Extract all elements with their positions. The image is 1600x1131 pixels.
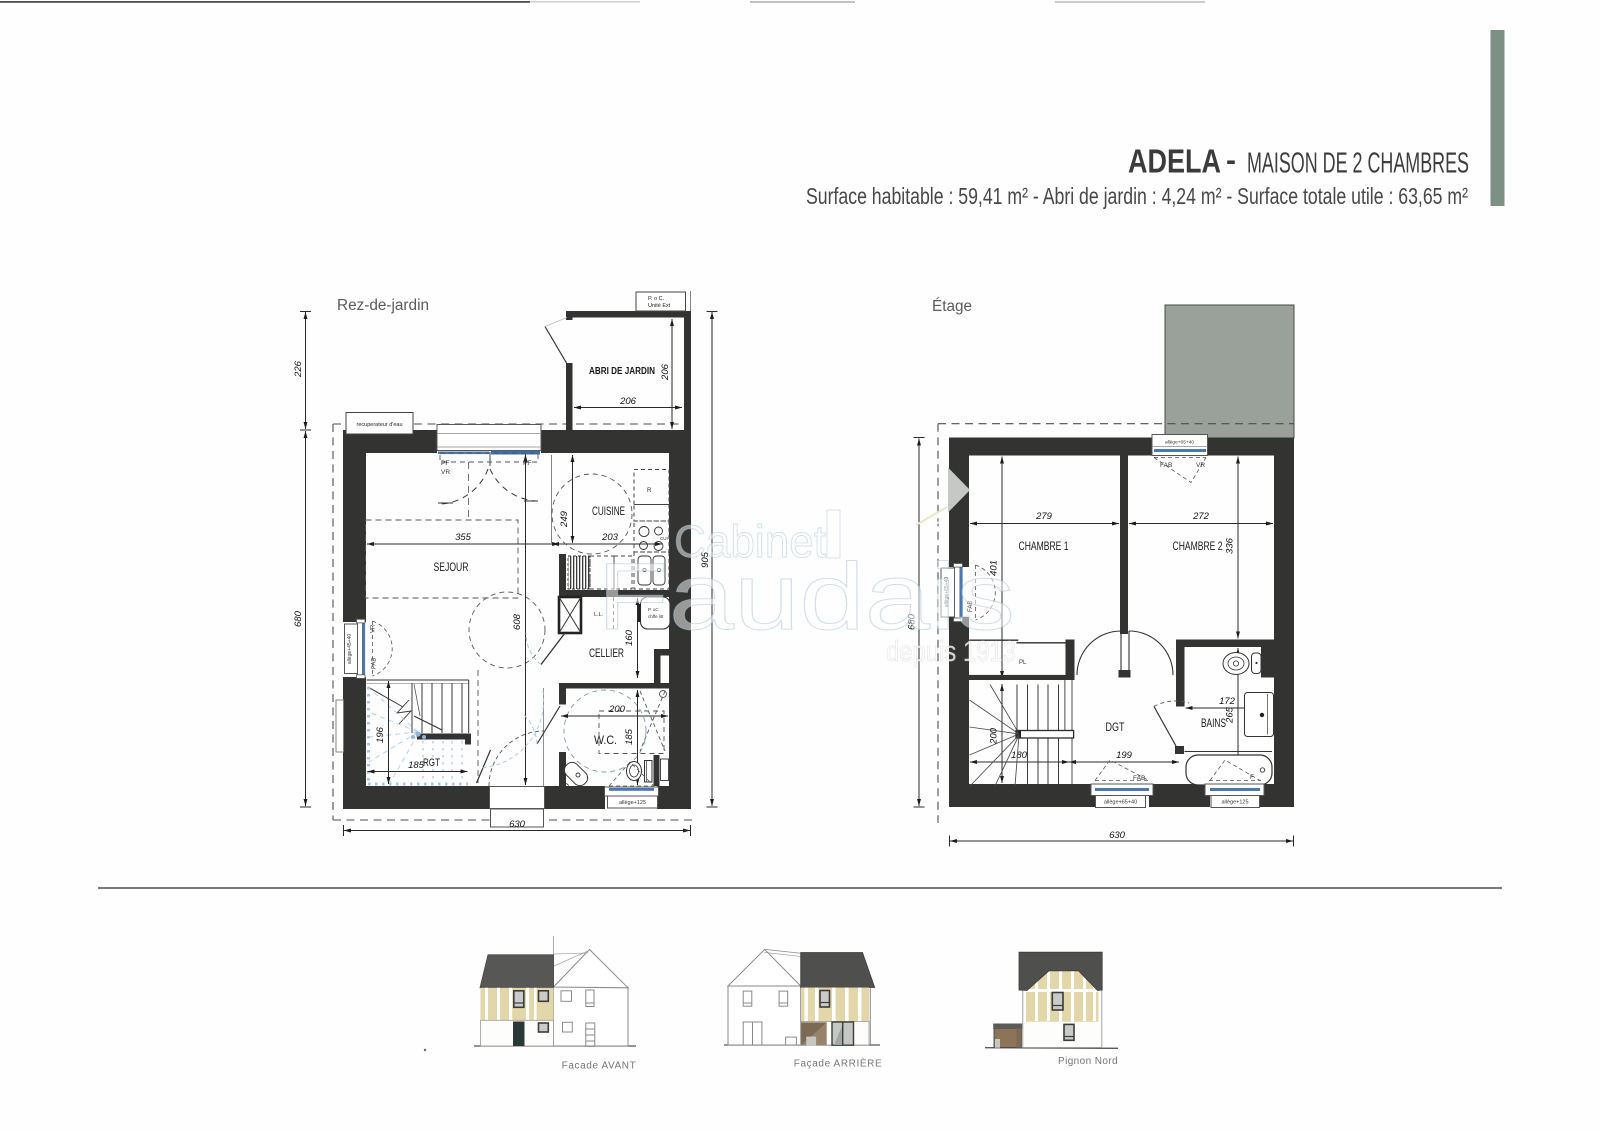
svg-text:CUI: CUI xyxy=(660,536,668,541)
svg-text:FAB: FAB xyxy=(1133,775,1145,782)
svg-text:Unité Ext: Unité Ext xyxy=(648,303,671,309)
svg-text:Rez-de-jardin: Rez-de-jardin xyxy=(337,297,429,314)
svg-text:allège+65+40: allège+65+40 xyxy=(1104,800,1137,806)
svg-text:680: 680 xyxy=(293,610,304,627)
svg-text:355: 355 xyxy=(455,532,472,543)
svg-text:199: 199 xyxy=(1116,750,1133,761)
svg-text:200: 200 xyxy=(608,704,626,715)
svg-text:336: 336 xyxy=(1225,537,1236,554)
svg-text:206: 206 xyxy=(660,363,671,381)
svg-text:allège+125: allège+125 xyxy=(1221,800,1248,806)
svg-text:206: 206 xyxy=(619,396,637,407)
svg-text:272: 272 xyxy=(1192,511,1210,522)
svg-text:depuis 1913: depuis 1913 xyxy=(886,636,1016,668)
svg-text:CHAMBRE 1: CHAMBRE 1 xyxy=(1019,539,1069,553)
svg-text:249: 249 xyxy=(559,510,570,528)
svg-text:PF: PF xyxy=(523,460,531,467)
svg-text:-: - xyxy=(1226,144,1236,177)
svg-text:allège+125: allège+125 xyxy=(619,800,646,806)
svg-text:VR: VR xyxy=(1196,462,1205,469)
svg-text:ADELA: ADELA xyxy=(1128,143,1221,180)
svg-text:PL: PL xyxy=(1019,660,1027,666)
svg-text:Facade AVANT: Facade AVANT xyxy=(562,1061,637,1072)
svg-text:Étage: Étage xyxy=(932,298,972,315)
svg-text:CHAMBRE 2: CHAMBRE 2 xyxy=(1173,539,1223,553)
svg-text:279: 279 xyxy=(1035,511,1053,522)
svg-text:VR: VR xyxy=(441,469,450,476)
svg-text:FAB: FAB xyxy=(1160,462,1172,469)
svg-text:Pignon Nord: Pignon Nord xyxy=(1058,1056,1118,1067)
svg-text:Surface habitable : 59,41 m² -: Surface habitable : 59,41 m² - Abri de j… xyxy=(806,183,1468,209)
svg-text:265: 265 xyxy=(1225,706,1236,724)
svg-text:196: 196 xyxy=(375,726,386,743)
svg-text:recuperateur d'eau: recuperateur d'eau xyxy=(357,422,403,428)
svg-text:630: 630 xyxy=(509,819,526,830)
svg-text:630: 630 xyxy=(1109,830,1126,841)
svg-text:P. o C.: P. o C. xyxy=(648,296,665,302)
svg-text:DGT: DGT xyxy=(1106,720,1125,734)
svg-text:203: 203 xyxy=(601,532,619,543)
svg-text:Faudais: Faudais xyxy=(597,544,1015,650)
svg-text:RGT: RGT xyxy=(423,757,440,769)
svg-text:SEJOUR: SEJOUR xyxy=(434,560,469,574)
svg-text:Façade ARRIÈRE: Façade ARRIÈRE xyxy=(794,1057,882,1070)
svg-text:R: R xyxy=(647,488,652,494)
svg-text:VR: VR xyxy=(371,624,377,633)
svg-text:allège+65+40: allège+65+40 xyxy=(1165,440,1194,446)
svg-text:MAISON DE 2 CHAMBRES: MAISON DE 2 CHAMBRES xyxy=(1247,148,1469,180)
svg-text:W.C.: W.C. xyxy=(594,733,617,747)
svg-text:F: F xyxy=(1250,774,1254,781)
svg-text:BAINS: BAINS xyxy=(1201,716,1226,730)
svg-text:172: 172 xyxy=(1219,696,1236,707)
svg-text:CUISINE: CUISINE xyxy=(592,504,625,518)
svg-text:allège+45+40: allège+45+40 xyxy=(347,634,353,665)
svg-text:ABRI DE JARDIN: ABRI DE JARDIN xyxy=(589,366,655,377)
svg-text:180: 180 xyxy=(1011,750,1028,761)
svg-text:185: 185 xyxy=(624,728,635,745)
svg-text:PF: PF xyxy=(441,460,449,467)
svg-text:608: 608 xyxy=(512,613,523,630)
svg-text:226: 226 xyxy=(293,360,304,378)
